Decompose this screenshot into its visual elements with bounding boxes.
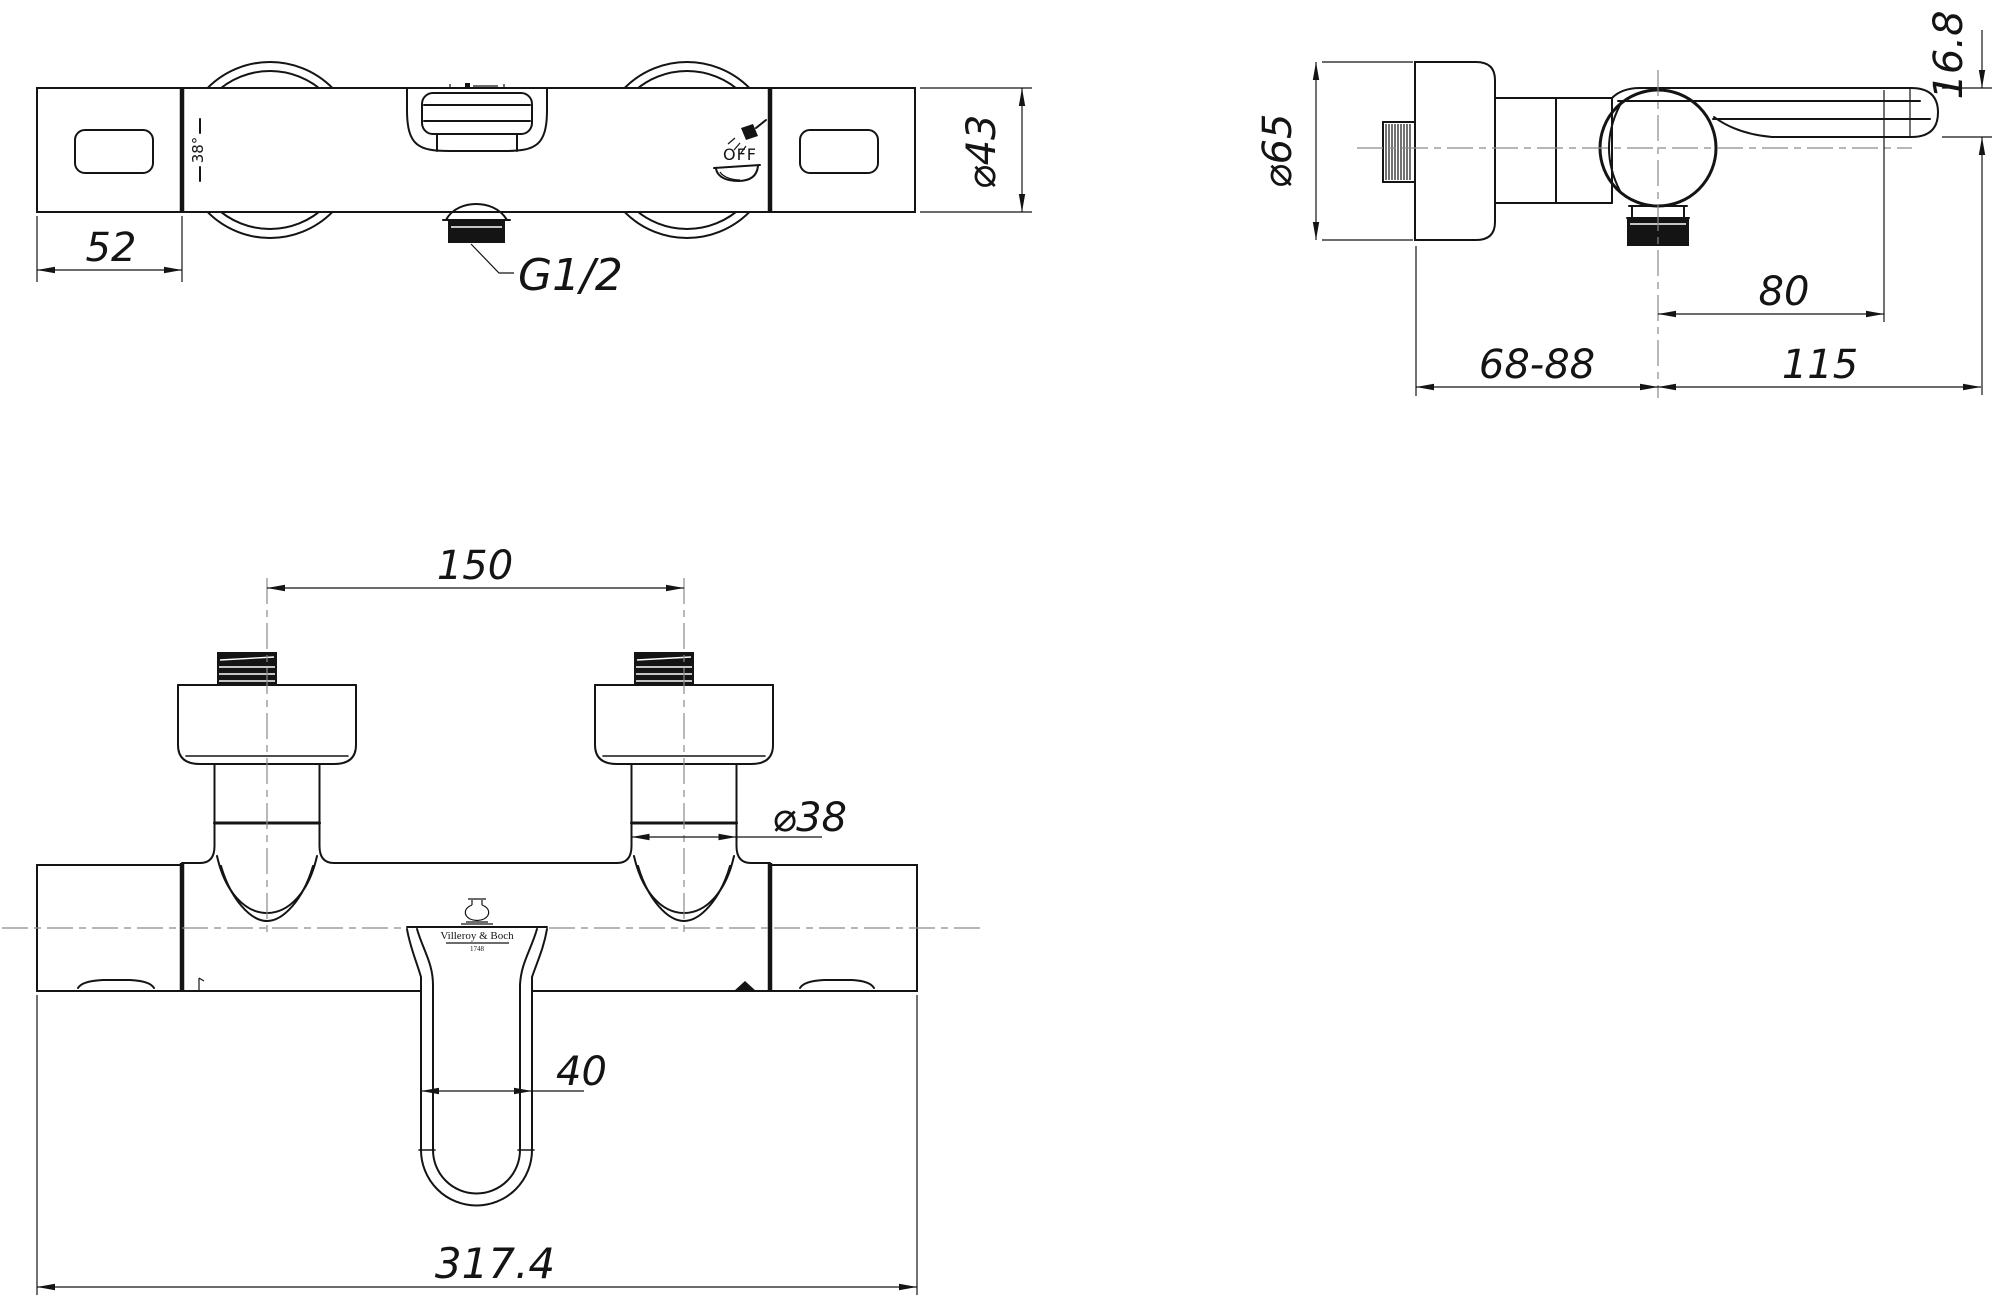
- g12-thread-label: G1/2: [518, 250, 623, 301]
- dim-16-8-label: 16.8: [1926, 10, 1972, 99]
- dim-317-4: 317.4: [37, 995, 917, 1295]
- off-label: OFF: [723, 145, 757, 164]
- dim-68-88-label: 68-88: [1479, 342, 1595, 388]
- dim-52: 52: [37, 216, 182, 282]
- dia-38-label: ⌀38: [772, 795, 847, 841]
- amphora-logo-icon: [461, 899, 493, 924]
- dim-68-88-115: 68-88 115: [1416, 246, 1981, 396]
- dim-150: 150: [267, 543, 684, 591]
- inlet-stud-right: [634, 652, 694, 686]
- dim-115-label: 115: [1782, 342, 1858, 388]
- front-centerlines: [2, 578, 983, 938]
- inlet-thread-stub: [1383, 122, 1415, 182]
- front-view: Villeroy & Boch 1748 150 ⌀38: [2, 543, 983, 1295]
- dim-16-8: 16.8: [1926, 10, 1992, 395]
- dim-40: 40: [421, 1049, 607, 1095]
- dia-65-label: ⌀65: [1255, 114, 1301, 189]
- dim-80: 80: [1658, 90, 1884, 322]
- dim-40-label: 40: [556, 1049, 607, 1095]
- lever-handle: [1612, 88, 1938, 137]
- dim-150-label: 150: [437, 543, 513, 589]
- dim-dia-38: ⌀38: [632, 795, 847, 841]
- dia-43-label: ⌀43: [959, 115, 1005, 190]
- shower-outlet-top: G1/2: [443, 204, 623, 301]
- technical-drawing-page: 38° OFF: [0, 0, 1995, 1298]
- inlet-stud-left: [217, 652, 277, 686]
- brand-name-label: Villeroy & Boch: [440, 930, 514, 942]
- escutcheon-side: [1415, 62, 1495, 240]
- dim-80-label: 80: [1759, 269, 1810, 315]
- dim-317-4-label: 317.4: [435, 1239, 555, 1288]
- side-view: ⌀65 16.8 80 68-88: [1255, 10, 1992, 398]
- top-view: 38° OFF: [36, 62, 1032, 301]
- temp-38-label: 38°: [189, 137, 207, 164]
- brand-year-label: 1748: [470, 945, 485, 953]
- bath-spout: [407, 927, 547, 1206]
- connector-steps: [1495, 98, 1612, 203]
- dim-dia-43: ⌀43: [920, 88, 1032, 212]
- dim-52-label: 52: [86, 225, 137, 271]
- drawing-canvas: 38° OFF: [0, 0, 1995, 1298]
- handle-underside-details: [78, 978, 874, 991]
